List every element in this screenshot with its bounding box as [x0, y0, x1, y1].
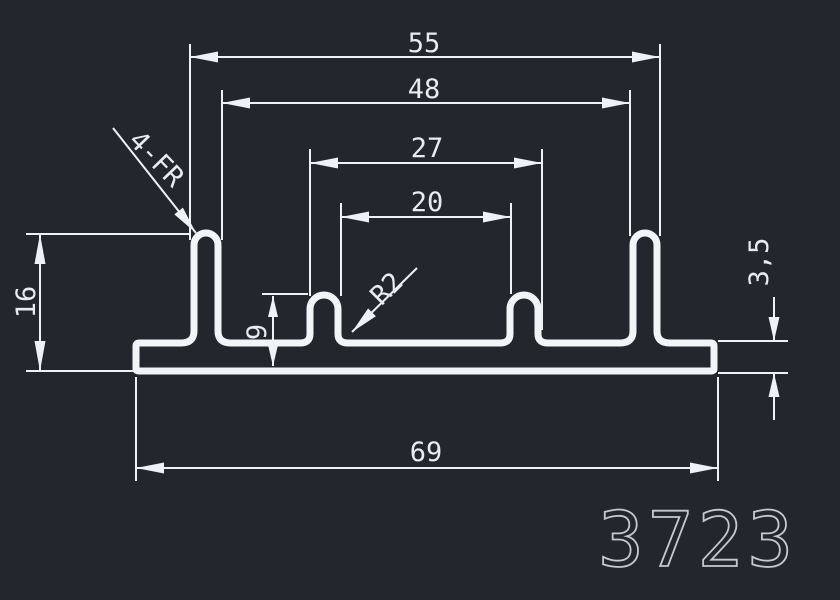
leader-4-fr: 4-FR [113, 125, 196, 233]
arrowhead-bottom [268, 345, 278, 366]
cad-drawing-canvas: 55 48 27 20 69 [0, 0, 840, 600]
dimension-9: 9 [242, 294, 308, 366]
dim-label-69: 69 [410, 437, 443, 468]
dim-label-48: 48 [408, 74, 441, 105]
dim-label-20: 20 [411, 187, 444, 218]
part-number: 3723 [598, 495, 797, 584]
arrowhead-right [632, 52, 660, 63]
profile-outline [136, 233, 714, 371]
profile-drawing-3723: 55 48 27 20 69 [0, 0, 840, 600]
dim-label-r2: R2 [365, 267, 410, 312]
dimension-20: 20 [341, 187, 511, 296]
part-number-text: 3723 [598, 495, 797, 584]
dimension-16: 16 [11, 234, 190, 371]
dim-label-9: 9 [242, 324, 273, 340]
dim-label-27: 27 [411, 133, 444, 164]
dim-label-3-5: 3,5 [744, 238, 775, 287]
arrowhead-bottom [769, 373, 780, 397]
arrowhead-right [690, 463, 718, 474]
dimension-27: 27 [310, 133, 542, 330]
arrowhead-right [483, 212, 511, 223]
arrowhead-bottom [35, 341, 46, 371]
arrowhead-left [222, 98, 250, 109]
arrowhead-top [769, 317, 780, 341]
profile-path [136, 233, 714, 371]
dim-label-55: 55 [408, 28, 441, 59]
leader-r2: R2 [352, 267, 417, 332]
arrowhead-right [602, 98, 630, 109]
dim-label-16: 16 [11, 286, 42, 319]
arrowhead [174, 208, 196, 233]
arrowhead-left [341, 212, 369, 223]
arrowhead-left [190, 52, 218, 63]
arrowhead-left [136, 463, 164, 474]
arrowhead-top [35, 234, 46, 264]
dimension-3-5: 3,5 [718, 238, 788, 420]
arrowhead-right [514, 158, 542, 169]
arrowhead-top [268, 296, 278, 317]
dimension-69: 69 [136, 377, 718, 481]
arrowhead-left [310, 158, 338, 169]
